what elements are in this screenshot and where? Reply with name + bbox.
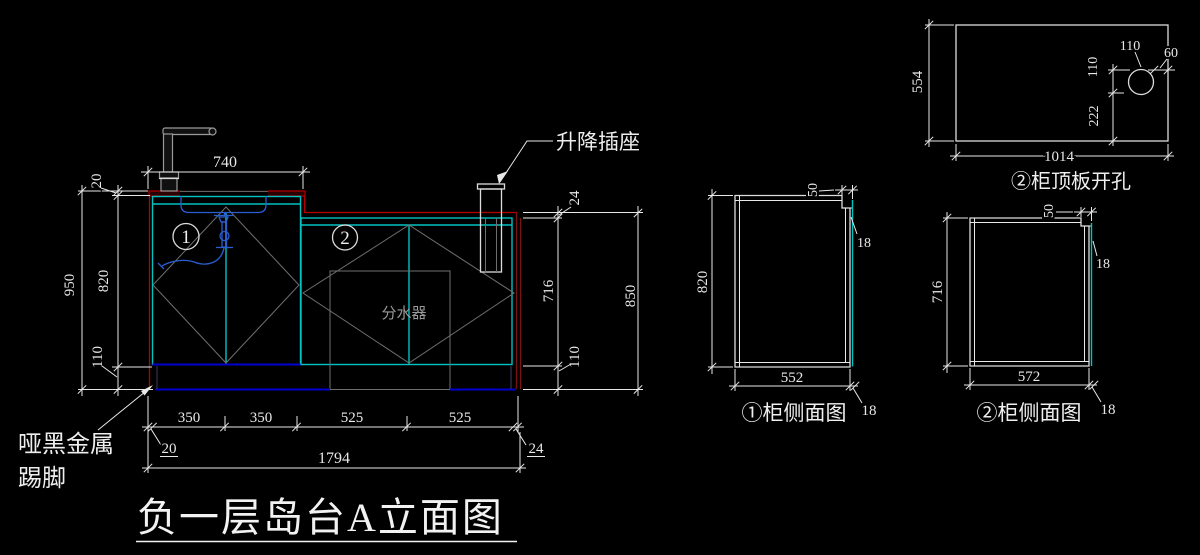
svg-text:110: 110 bbox=[1120, 39, 1140, 54]
svg-text:554: 554 bbox=[910, 70, 926, 93]
svg-text:572: 572 bbox=[1018, 369, 1041, 385]
svg-text:950: 950 bbox=[62, 274, 78, 297]
svg-text:1014: 1014 bbox=[1044, 149, 1075, 165]
svg-text:716: 716 bbox=[930, 280, 946, 303]
side-view-1: 50 18 820 552 18 ①柜侧面图 bbox=[695, 183, 877, 425]
svg-text:24: 24 bbox=[529, 441, 545, 457]
svg-text:2: 2 bbox=[340, 228, 350, 249]
top-panel-detail: 554 1014 110 222 110 60 ②柜顶板开孔 bbox=[910, 19, 1178, 193]
cad-drawing: 分水器 bbox=[0, 0, 1200, 555]
svg-text:20: 20 bbox=[162, 441, 177, 457]
drawing-title: 负一层岛台A立面图 bbox=[136, 495, 517, 542]
svg-text:525: 525 bbox=[341, 410, 364, 426]
svg-text:20: 20 bbox=[89, 174, 105, 189]
side-view-2-caption: ②柜侧面图 bbox=[977, 401, 1082, 425]
svg-text:18: 18 bbox=[1096, 257, 1110, 272]
svg-text:60: 60 bbox=[1164, 46, 1178, 61]
side-view-1-caption: ①柜侧面图 bbox=[742, 401, 847, 425]
kickboard-label-2: 踢脚 bbox=[18, 465, 66, 492]
elevation-view: 分水器 bbox=[149, 128, 521, 390]
svg-text:110: 110 bbox=[90, 346, 106, 368]
svg-text:110: 110 bbox=[1086, 57, 1101, 77]
svg-text:350: 350 bbox=[250, 410, 273, 426]
distributor-label: 分水器 bbox=[381, 305, 426, 322]
socket-label: 升降插座 bbox=[556, 130, 640, 154]
top-panel-caption: ②柜顶板开孔 bbox=[1011, 170, 1131, 193]
svg-text:50: 50 bbox=[806, 183, 821, 197]
kickboard-label-1: 哑黑金属 bbox=[18, 431, 114, 458]
svg-text:1794: 1794 bbox=[318, 450, 350, 467]
svg-text:50: 50 bbox=[1042, 204, 1057, 218]
svg-text:850: 850 bbox=[623, 285, 639, 308]
lifting-socket bbox=[478, 184, 505, 272]
svg-text:24: 24 bbox=[567, 190, 583, 206]
svg-text:525: 525 bbox=[449, 410, 472, 426]
faucet bbox=[159, 128, 216, 191]
svg-text:716: 716 bbox=[541, 279, 557, 302]
svg-text:1: 1 bbox=[181, 227, 191, 248]
svg-text:18: 18 bbox=[862, 403, 877, 419]
annotation-kickboard: 哑黑金属 踢脚 bbox=[18, 385, 153, 492]
svg-text:740: 740 bbox=[213, 154, 237, 171]
leader-arrow-icon bbox=[497, 171, 508, 184]
svg-text:222: 222 bbox=[1087, 106, 1102, 127]
side-view-2: 50 18 716 572 18 ②柜侧面图 bbox=[930, 204, 1116, 425]
annotation-socket: 升降插座 bbox=[497, 130, 640, 184]
svg-text:18: 18 bbox=[1101, 402, 1116, 418]
svg-text:552: 552 bbox=[781, 370, 804, 386]
svg-text:350: 350 bbox=[178, 410, 201, 426]
distributor-box bbox=[330, 271, 450, 390]
svg-text:820: 820 bbox=[96, 270, 112, 293]
cabinet-1-tag: 1 bbox=[173, 224, 199, 250]
page-title: 负一层岛台A立面图 bbox=[137, 495, 504, 540]
svg-text:18: 18 bbox=[857, 236, 871, 251]
hole-circle bbox=[1129, 70, 1154, 95]
cabinet-2-tag: 2 bbox=[333, 225, 358, 250]
cad-drawing-canvas: 分水器 bbox=[0, 0, 1200, 555]
svg-text:820: 820 bbox=[695, 271, 711, 294]
